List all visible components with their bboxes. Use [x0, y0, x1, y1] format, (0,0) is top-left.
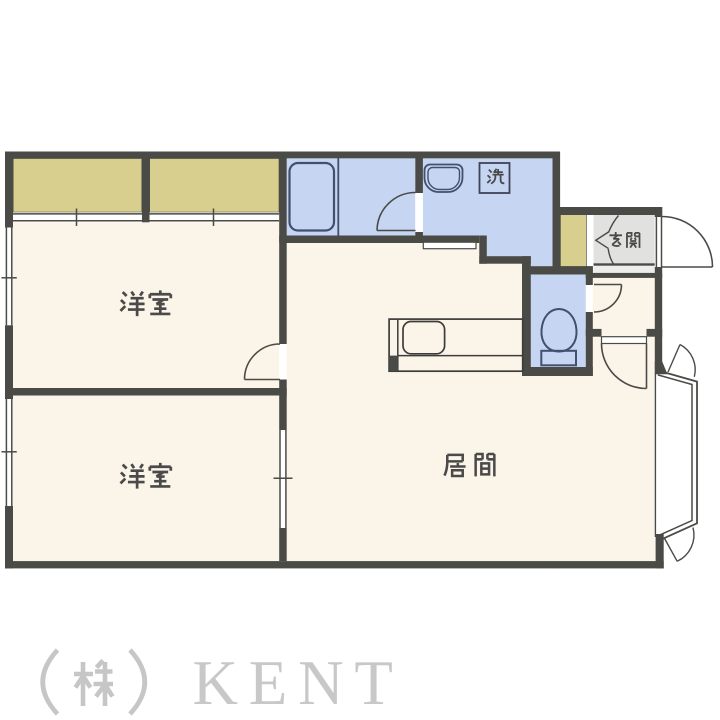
svg-text:KENT: KENT: [193, 648, 404, 718]
